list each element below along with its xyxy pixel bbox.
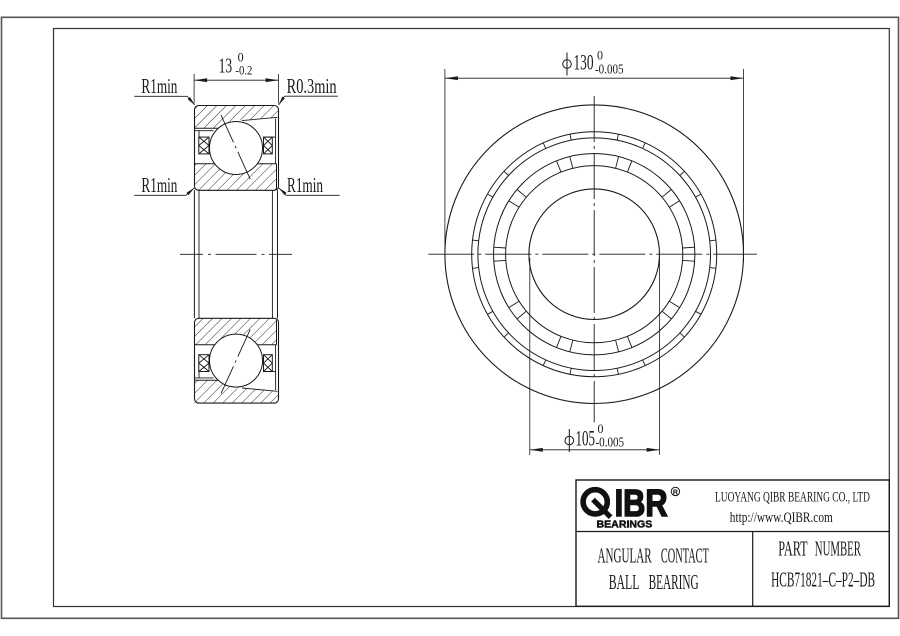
svg-text:0: 0 bbox=[597, 47, 603, 62]
svg-text:105: 105 bbox=[576, 426, 596, 451]
svg-text:CONTACT: CONTACT bbox=[661, 544, 709, 568]
svg-text:BEARINGS: BEARINGS bbox=[597, 519, 653, 530]
svg-text:-0.005: -0.005 bbox=[595, 62, 624, 77]
svg-text:LUOYANG QIBR BEARING CO., LTD: LUOYANG QIBR BEARING CO., LTD bbox=[715, 490, 870, 506]
svg-text:-0.2: -0.2 bbox=[235, 63, 252, 78]
svg-text:-0.005: -0.005 bbox=[596, 436, 625, 451]
svg-text:NUMBER: NUMBER bbox=[815, 537, 861, 561]
svg-text:PART: PART bbox=[778, 537, 807, 561]
svg-text:R1min: R1min bbox=[141, 74, 177, 98]
svg-text:BALL: BALL bbox=[609, 570, 640, 594]
svg-text:130: 130 bbox=[574, 50, 594, 75]
svg-text:R0.3min: R0.3min bbox=[287, 74, 337, 98]
svg-text:R1min: R1min bbox=[287, 173, 323, 197]
svg-text:R1min: R1min bbox=[141, 173, 177, 197]
svg-text:http://www.QIBR.com: http://www.QIBR.com bbox=[730, 510, 833, 526]
svg-text:13: 13 bbox=[219, 54, 233, 78]
svg-text:BEARING: BEARING bbox=[649, 570, 699, 594]
svg-text:0: 0 bbox=[598, 421, 604, 436]
svg-text:ANGULAR: ANGULAR bbox=[598, 544, 652, 568]
svg-text:HCB71821–C–P2–DB: HCB71821–C–P2–DB bbox=[771, 567, 875, 591]
svg-text:R: R bbox=[673, 489, 678, 496]
